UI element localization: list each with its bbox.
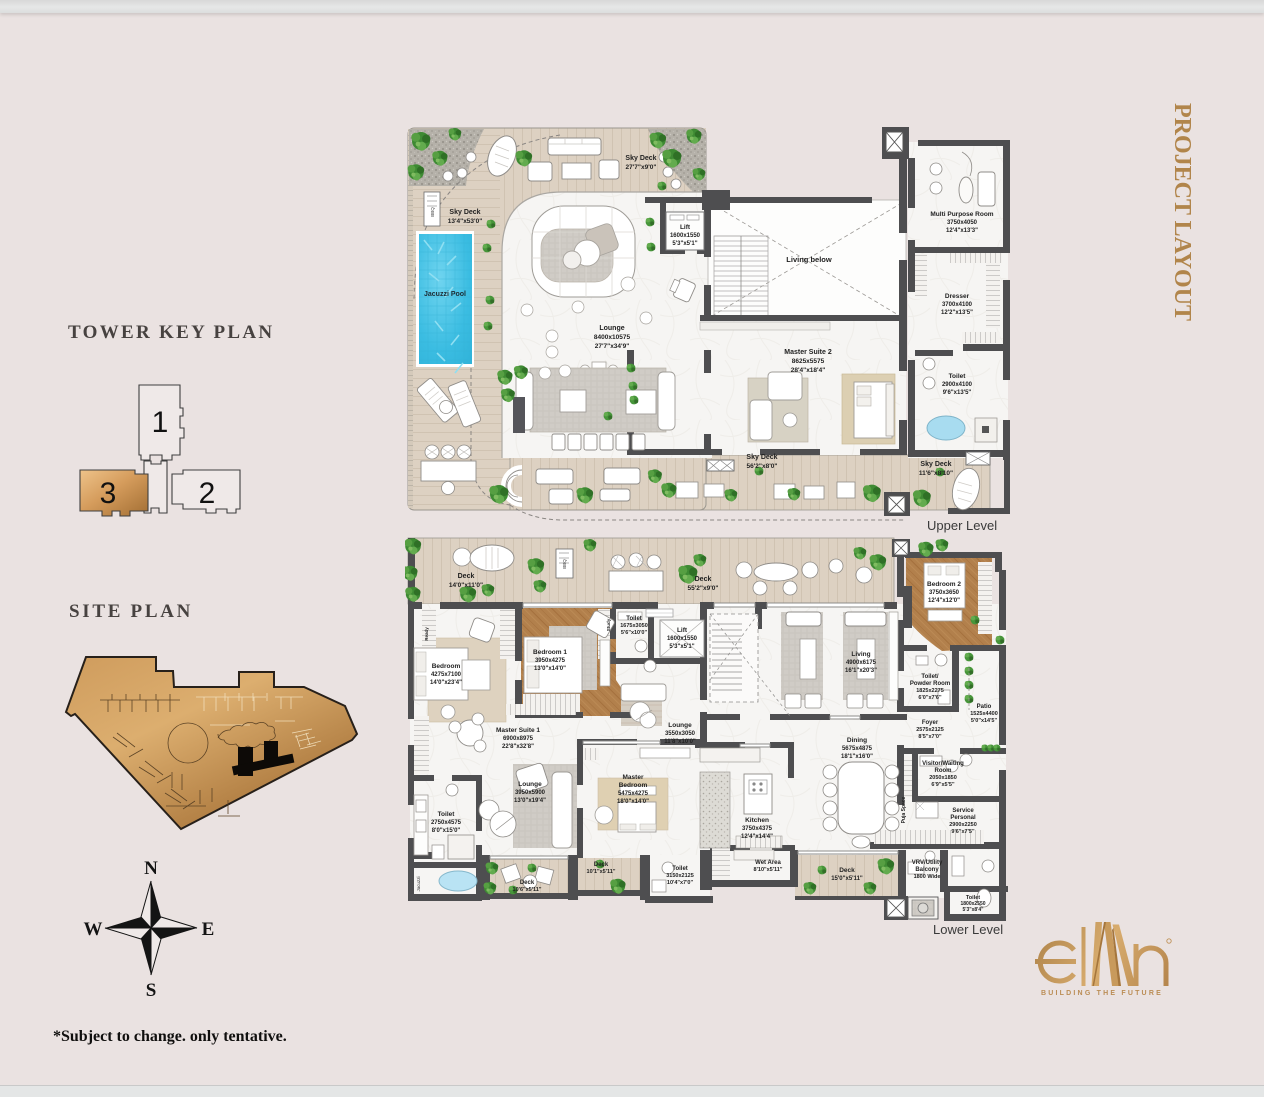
svg-text:Deck: Deck	[839, 867, 855, 874]
svg-text:5'3"x5'1": 5'3"x5'1"	[672, 241, 697, 247]
svg-text:12'4"x14'4": 12'4"x14'4"	[741, 834, 773, 840]
svg-text:Deck: Deck	[594, 862, 609, 868]
svg-text:BUILDING THE FUTURE: BUILDING THE FUTURE	[1041, 990, 1163, 997]
svg-text:6'9"x5'5": 6'9"x5'5"	[931, 782, 955, 788]
svg-text:Toilet: Toilet	[626, 616, 642, 622]
svg-text:Sky Deck: Sky Deck	[920, 461, 951, 468]
svg-text:Living: Living	[851, 651, 870, 658]
svg-text:8625x5575: 8625x5575	[792, 358, 825, 365]
svg-text:3950x4275: 3950x4275	[535, 658, 566, 664]
svg-text:Lift: Lift	[680, 224, 691, 231]
svg-text:3: 3	[100, 477, 117, 510]
svg-text:Lounge: Lounge	[518, 781, 542, 788]
svg-text:Sky Deck: Sky Deck	[746, 454, 777, 461]
svg-text:1675x3050: 1675x3050	[620, 623, 648, 629]
svg-text:27'7"x9'0": 27'7"x9'0"	[626, 164, 657, 171]
svg-text:16'1"x20'3": 16'1"x20'3"	[845, 668, 877, 674]
svg-text:Sky Deck: Sky Deck	[449, 209, 480, 216]
svg-text:13'0"x19'4": 13'0"x19'4"	[514, 798, 546, 804]
svg-text:13'0"x14'0": 13'0"x14'0"	[534, 666, 566, 672]
svg-text:Bedroom: Bedroom	[432, 663, 461, 670]
svg-text:56'2"x8'0": 56'2"x8'0"	[747, 463, 778, 470]
svg-text:2900x4100: 2900x4100	[942, 382, 973, 388]
svg-text:2575x2125: 2575x2125	[916, 727, 944, 733]
svg-text:Bedroom 1: Bedroom 1	[533, 649, 567, 656]
svg-text:12'4"x12'0": 12'4"x12'0"	[928, 598, 960, 604]
svg-text:8'10"x5'11": 8'10"x5'11"	[754, 867, 783, 873]
svg-text:Lounge: Lounge	[599, 325, 624, 332]
svg-text:9'6"x7'5": 9'6"x7'5"	[951, 829, 975, 835]
svg-text:1: 1	[152, 406, 169, 439]
svg-text:2900x2250: 2900x2250	[949, 822, 977, 828]
svg-text:27'7"x34'9": 27'7"x34'9"	[595, 343, 630, 350]
svg-text:14'0"x23'4": 14'0"x23'4"	[430, 680, 462, 686]
svg-text:Deck: Deck	[520, 880, 535, 886]
svg-text:Powder Room: Powder Room	[910, 681, 950, 687]
svg-text:2: 2	[199, 477, 216, 510]
svg-text:15'0"x5'11": 15'0"x5'11"	[831, 876, 863, 882]
svg-text:8'0"x15'0": 8'0"x15'0"	[432, 828, 461, 834]
svg-text:Visitor/Waiting: Visitor/Waiting	[922, 761, 964, 767]
svg-text:Balcony: Balcony	[915, 867, 939, 873]
svg-text:8400x10575: 8400x10575	[594, 334, 631, 341]
svg-text:S: S	[146, 980, 157, 1001]
svg-text:11'8"x10'0": 11'8"x10'0"	[664, 739, 696, 745]
svg-text:11'6"x8'10": 11'6"x8'10"	[919, 470, 953, 477]
svg-text:Dining: Dining	[847, 737, 867, 744]
svg-text:2050x1850: 2050x1850	[929, 775, 957, 781]
svg-text:Jacuzzi: Jacuzzi	[416, 876, 421, 891]
svg-text:Sky Deck: Sky Deck	[625, 155, 656, 162]
svg-text:Patio: Patio	[977, 704, 992, 710]
svg-text:Service: Service	[952, 808, 974, 814]
svg-text:Toilet: Toilet	[949, 373, 967, 380]
svg-text:Toilet/: Toilet/	[921, 674, 939, 680]
svg-text:Master Suite 2: Master Suite 2	[784, 349, 832, 356]
svg-text:12'4"x13'3": 12'4"x13'3"	[946, 228, 978, 234]
svg-text:Master: Master	[623, 774, 644, 781]
svg-text:Foyer: Foyer	[922, 720, 939, 726]
svg-text:10'6"x5'11": 10'6"x5'11"	[513, 887, 542, 893]
svg-text:Bedroom: Bedroom	[619, 782, 648, 789]
svg-text:8'5"x7'0": 8'5"x7'0"	[918, 734, 942, 740]
svg-text:Puja Space: Puja Space	[901, 796, 907, 823]
svg-text:2750x4575: 2750x4575	[431, 820, 462, 826]
svg-text:10'4"x7'0": 10'4"x7'0"	[667, 880, 694, 886]
svg-text:Study: Study	[606, 618, 611, 631]
svg-text:Room: Room	[935, 768, 952, 774]
svg-text:Ready: Ready	[424, 627, 429, 641]
svg-text:Kitchen: Kitchen	[745, 817, 769, 824]
svg-text:1825x2275: 1825x2275	[916, 688, 944, 694]
svg-text:3950x5900: 3950x5900	[515, 790, 546, 796]
svg-text:18'1"x16'0": 18'1"x16'0"	[841, 754, 873, 760]
svg-text:1600x1550: 1600x1550	[667, 636, 698, 642]
svg-text:3750x4050: 3750x4050	[947, 220, 978, 226]
svg-text:Toilet: Toilet	[438, 811, 456, 818]
svg-text:3150x2125: 3150x2125	[666, 873, 694, 879]
svg-text:Master Suite 1: Master Suite 1	[496, 727, 540, 734]
svg-text:13'4"x53'0": 13'4"x53'0"	[448, 218, 483, 225]
svg-text:5'0"x14'5": 5'0"x14'5"	[971, 718, 998, 724]
svg-text:1525x4400: 1525x4400	[970, 711, 998, 717]
svg-text:E: E	[202, 919, 215, 940]
svg-text:4275x7100: 4275x7100	[431, 672, 462, 678]
svg-text:Deck: Deck	[695, 576, 712, 583]
svg-text:Jacuzzi Pool: Jacuzzi Pool	[424, 291, 466, 298]
svg-text:6900x8975: 6900x8975	[503, 736, 534, 742]
svg-text:3750x4375: 3750x4375	[742, 826, 773, 832]
svg-text:Wet Area: Wet Area	[755, 860, 781, 866]
svg-text:5'3"x5'1": 5'3"x5'1"	[669, 644, 694, 650]
svg-text:5'6"x10'0": 5'6"x10'0"	[621, 630, 648, 636]
svg-text:1600x1550: 1600x1550	[670, 233, 701, 239]
svg-text:55'2"x9'0": 55'2"x9'0"	[688, 585, 719, 592]
svg-text:Lift: Lift	[677, 627, 688, 634]
svg-text:Deck: Deck	[458, 573, 475, 580]
svg-text:18'0"x14'0": 18'0"x14'0"	[617, 799, 649, 805]
svg-text:12'2"x13'5": 12'2"x13'5"	[941, 310, 973, 316]
svg-text:22'8"x32'8": 22'8"x32'8"	[502, 744, 534, 750]
svg-text:W: W	[84, 919, 103, 940]
svg-text:Bedroom 2: Bedroom 2	[927, 581, 961, 588]
svg-text:6'0"x7'6": 6'0"x7'6"	[918, 695, 942, 701]
svg-text:BBQ: BBQ	[562, 559, 567, 569]
svg-text:4900x6175: 4900x6175	[846, 660, 877, 666]
svg-text:5675x4875: 5675x4875	[842, 746, 873, 752]
svg-text:Personal: Personal	[950, 815, 976, 821]
svg-text:Multi Purpose Room: Multi Purpose Room	[930, 211, 993, 218]
svg-text:Toilet: Toilet	[672, 866, 688, 872]
svg-text:10'1"x5'11": 10'1"x5'11"	[587, 869, 616, 875]
svg-text:Dresser: Dresser	[945, 293, 970, 300]
svg-text:1800 Wide: 1800 Wide	[914, 874, 941, 880]
svg-text:9'6"x13'5": 9'6"x13'5"	[943, 390, 972, 396]
svg-text:VRV/Utility: VRV/Utility	[912, 860, 943, 866]
svg-text:5'3"x8'4": 5'3"x8'4"	[962, 907, 984, 913]
svg-text:3550x3050: 3550x3050	[665, 731, 696, 737]
svg-text:14'0"x11'0": 14'0"x11'0"	[449, 582, 483, 589]
svg-text:N: N	[144, 860, 158, 879]
svg-text:Lounge: Lounge	[668, 722, 692, 729]
svg-text:5475x4275: 5475x4275	[618, 791, 649, 797]
svg-text:28'4"x18'4": 28'4"x18'4"	[791, 367, 826, 374]
svg-text:3700x4100: 3700x4100	[942, 302, 973, 308]
svg-text:BBQ: BBQ	[430, 207, 435, 217]
svg-text:Living below: Living below	[786, 255, 832, 264]
svg-text:3750x3650: 3750x3650	[929, 590, 960, 596]
